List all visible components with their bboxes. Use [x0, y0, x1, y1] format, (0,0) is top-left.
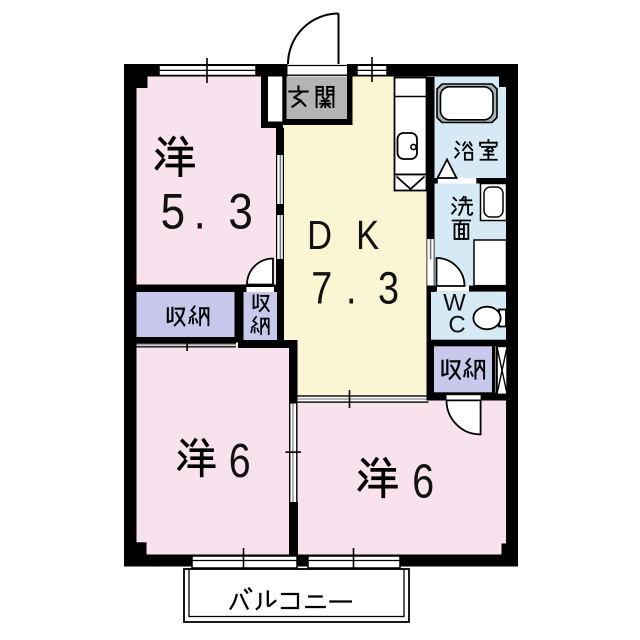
svg-text:3: 3 — [228, 183, 252, 239]
svg-text:3: 3 — [378, 262, 399, 313]
svg-text:.: . — [346, 262, 357, 313]
svg-text:.: . — [194, 183, 206, 239]
svg-text:C: C — [448, 312, 465, 339]
svg-text:5: 5 — [161, 183, 185, 239]
svg-text:D: D — [307, 213, 332, 258]
svg-text:6: 6 — [229, 434, 251, 488]
svg-text:K: K — [356, 213, 379, 258]
svg-text:6: 6 — [412, 455, 434, 509]
svg-text:7: 7 — [311, 262, 332, 313]
